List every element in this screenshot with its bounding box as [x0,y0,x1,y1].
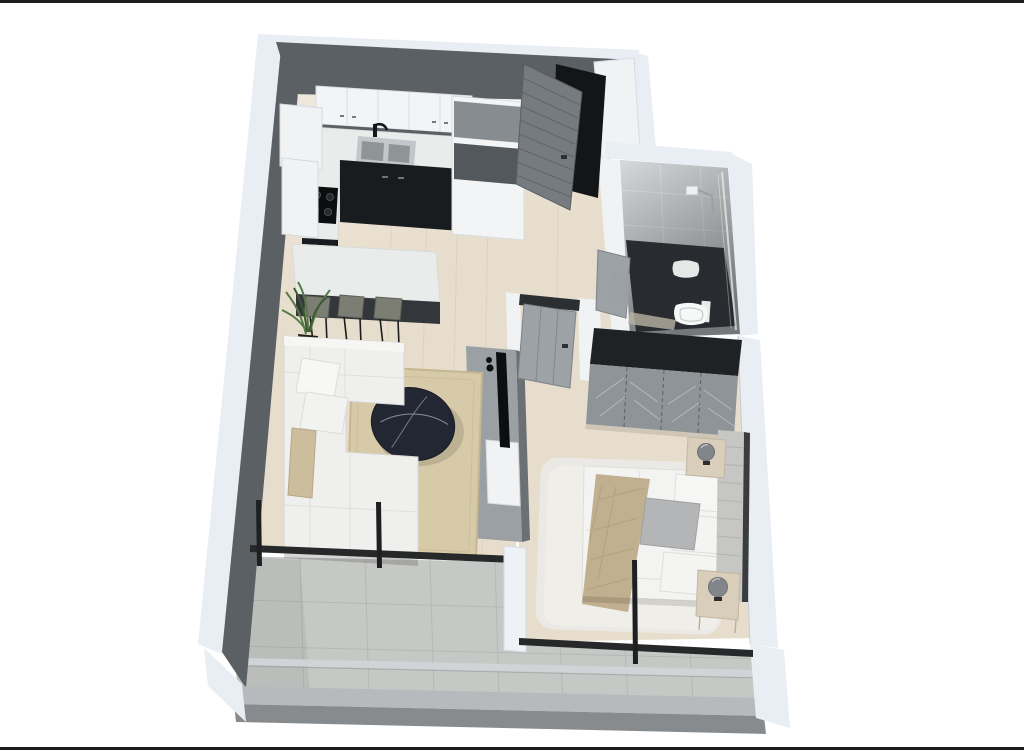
parapet-right-cap [750,644,790,728]
sphere-lamp [698,444,715,461]
floor-plan-render-page [0,0,1024,753]
window-mullion-post [376,502,382,568]
sofa-pillow-white-1 [296,358,340,398]
vanity-cabinet [608,270,630,306]
nightstand-top [686,437,726,478]
wardrobe [585,328,742,441]
sphere-lamp [709,578,728,597]
wall-nook-block-lower [282,158,318,238]
living-room [284,336,482,566]
front-door-handle [561,155,567,159]
sink-basin-left [361,141,384,161]
window-mullion-post [256,500,262,566]
sofa-pillow-white-2 [300,392,348,434]
toilet [674,301,711,325]
sink-basin-right [388,144,410,163]
stool-seat [338,295,364,318]
apartment-floorplan-svg [0,0,1024,753]
bedroom-door-handle [562,344,568,348]
bed-pillow-gray [640,498,700,550]
island-countertop [292,244,440,302]
stool-seat [374,297,402,320]
tall-cabinet-gray-panel [454,101,522,143]
tall-cabinet-dark-panel [454,143,522,185]
media-unit-white-block [486,440,520,506]
entry [516,64,606,210]
window-mullion-post [632,560,638,664]
balcony-pillar [504,546,526,652]
wall-hung-fixture [673,260,700,278]
sofa-pillow-tan [288,428,316,498]
